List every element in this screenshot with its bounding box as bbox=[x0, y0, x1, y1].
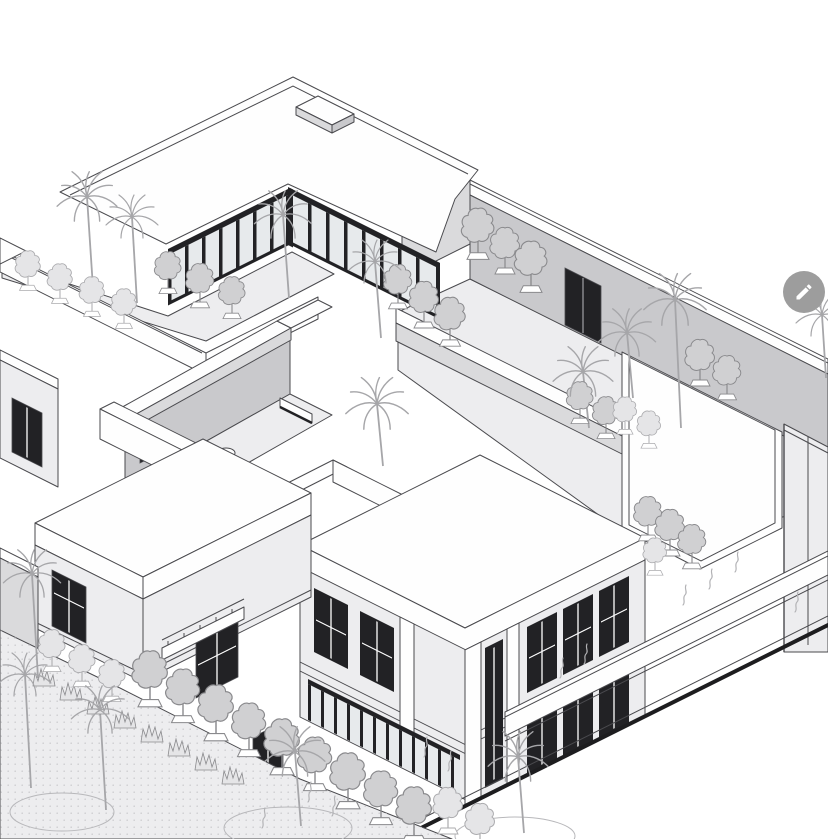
edit-button[interactable] bbox=[783, 271, 825, 313]
architectural-axonometric-drawing bbox=[0, 0, 828, 839]
pencil-icon bbox=[794, 282, 814, 302]
